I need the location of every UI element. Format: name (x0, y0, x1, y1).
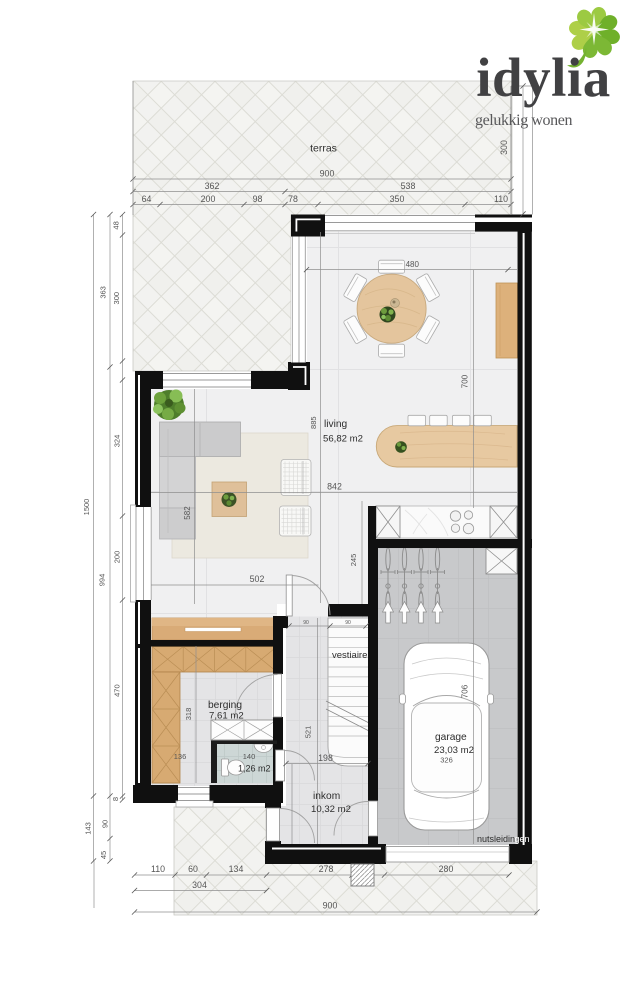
svg-text:480: 480 (406, 260, 420, 269)
svg-text:nutsleidin: nutsleidin (477, 834, 515, 844)
svg-text:470: 470 (113, 684, 122, 697)
svg-text:900: 900 (320, 169, 335, 179)
svg-text:994: 994 (98, 574, 107, 587)
svg-text:304: 304 (192, 880, 207, 890)
svg-text:1500: 1500 (82, 499, 91, 516)
svg-text:48: 48 (112, 221, 121, 229)
svg-text:300: 300 (112, 292, 121, 305)
svg-text:terras: terras (310, 143, 337, 155)
svg-text:110: 110 (494, 194, 508, 204)
svg-text:538: 538 (401, 181, 416, 191)
svg-text:berging: berging (208, 700, 242, 711)
svg-text:64: 64 (142, 194, 152, 204)
svg-text:134: 134 (229, 864, 244, 874)
svg-text:23,03 m2: 23,03 m2 (434, 745, 474, 756)
svg-text:200: 200 (113, 551, 122, 564)
svg-text:7,61 m2: 7,61 m2 (209, 711, 244, 722)
svg-text:143: 143 (84, 822, 93, 835)
svg-text:110: 110 (151, 864, 165, 874)
svg-text:idylia: idylia (476, 47, 610, 108)
svg-text:8: 8 (111, 797, 120, 801)
svg-text:inkom: inkom (313, 791, 340, 802)
svg-text:98: 98 (253, 194, 263, 204)
svg-text:90: 90 (345, 620, 351, 626)
svg-text:300: 300 (499, 140, 509, 155)
svg-text:700: 700 (461, 374, 470, 388)
svg-text:900: 900 (323, 901, 338, 911)
svg-text:350: 350 (390, 194, 405, 204)
svg-text:200: 200 (201, 194, 216, 204)
svg-text:885: 885 (309, 416, 318, 429)
svg-text:1,26 m2: 1,26 m2 (238, 764, 271, 774)
svg-text:78: 78 (288, 194, 298, 204)
svg-text:gelukkig wonen: gelukkig wonen (475, 112, 572, 129)
svg-text:140: 140 (243, 752, 256, 761)
svg-text:45: 45 (99, 851, 108, 859)
svg-text:90: 90 (303, 620, 309, 626)
svg-text:90: 90 (101, 820, 110, 828)
svg-text:502: 502 (250, 574, 265, 584)
svg-text:521: 521 (304, 726, 313, 739)
svg-text:318: 318 (184, 708, 193, 721)
svg-text:60: 60 (188, 864, 198, 874)
svg-text:245: 245 (349, 554, 358, 567)
svg-text:136: 136 (174, 752, 187, 761)
svg-text:10,32 m2: 10,32 m2 (311, 804, 351, 815)
svg-text:326: 326 (440, 756, 453, 765)
svg-text:362: 362 (205, 181, 220, 191)
svg-text:278: 278 (319, 864, 334, 874)
svg-text:gen: gen (515, 834, 530, 844)
svg-text:garage: garage (435, 732, 467, 743)
svg-text:582: 582 (183, 506, 192, 520)
svg-text:363: 363 (99, 286, 108, 299)
svg-text:56,82 m2: 56,82 m2 (323, 434, 363, 445)
svg-text:324: 324 (113, 435, 122, 448)
svg-text:842: 842 (327, 482, 342, 492)
svg-text:living: living (324, 419, 348, 430)
svg-text:280: 280 (439, 864, 454, 874)
svg-text:vestiaire: vestiaire (332, 650, 367, 661)
svg-text:706: 706 (461, 684, 470, 698)
svg-text:198: 198 (318, 753, 333, 763)
